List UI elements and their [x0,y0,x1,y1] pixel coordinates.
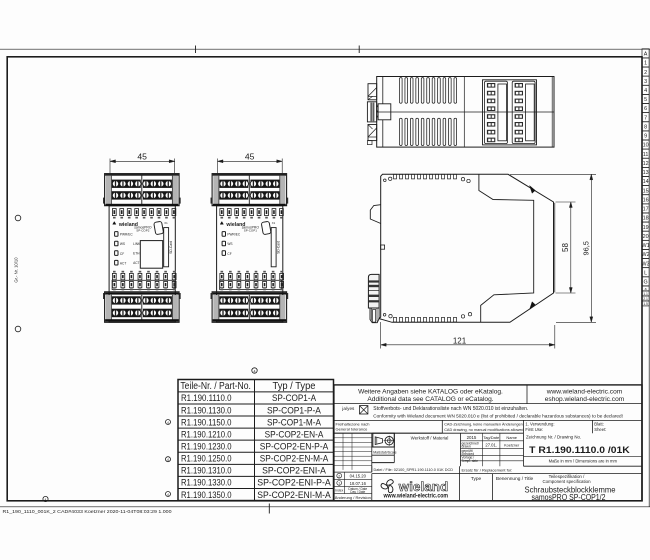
svg-text:SP-COP2-ENI-A: SP-COP2-ENI-A [262,465,326,476]
svg-text:121: 121 [453,336,467,345]
svg-text:14: 14 [643,179,649,185]
svg-text:1.1: 1.1 [643,292,648,296]
svg-text:www.wieland-electric.com: www.wieland-electric.com [546,388,623,395]
svg-text:PWR/EC: PWR/EC [227,233,240,237]
svg-text:CF: CF [227,252,231,256]
svg-text:WS: WS [227,242,232,246]
svg-text:96,5: 96,5 [581,241,590,255]
svg-text:R1.190.1150.0: R1.190.1150.0 [181,416,232,427]
svg-text:R1.190.1130.0: R1.190.1130.0 [181,404,232,415]
svg-text:T R1.190.1110.0 /01K: T R1.190.1110.0 /01K [529,445,630,455]
svg-text:Teile-Nr. / Part-No.: Teile-Nr. / Part-No. [180,381,251,392]
svg-text:Gr.- Nr. 10/10: Gr.- Nr. 10/10 [14,257,19,283]
svg-text:G: G [643,280,647,286]
svg-text:Sheet:: Sheet: [594,427,606,432]
svg-text:1.5: 1.5 [643,302,648,306]
svg-text:R1.190.1230.0: R1.190.1230.0 [181,440,232,451]
svg-text:Zeichnung Nr. / Drawing No.: Zeichnung Nr. / Drawing No. [526,435,581,440]
svg-text:4: 4 [644,88,647,94]
svg-text:ETH: ETH [133,252,140,256]
svg-text:20: 20 [643,234,649,240]
svg-text:16: 16 [643,197,649,203]
svg-text:L: L [644,270,647,276]
svg-text:X1: X1 [164,221,168,225]
svg-text:12: 12 [643,161,649,167]
svg-text:R1.190.1210.0: R1.190.1210.0 [181,428,232,439]
svg-text:www.wieland-electric.com: www.wieland-electric.com [383,494,448,500]
svg-text:7: 7 [644,115,647,121]
svg-text:CAD-Zeichnung, keine manuellen: CAD-Zeichnung, keine manuellen Änderunge… [444,422,523,426]
svg-text:PWR/EC: PWR/EC [120,233,133,237]
svg-text:5: 5 [644,97,647,103]
svg-text:45: 45 [137,151,147,161]
svg-text:SP-COP1: SP-COP1 [244,229,258,233]
svg-text:A: A [644,52,648,58]
svg-text:SD-Card: SD-Card [169,241,173,254]
svg-text:R1.190.1110.0: R1.190.1110.0 [181,392,232,403]
svg-text:2: 2 [644,70,647,76]
svg-text:samosPRO SP-COP1/2: samosPRO SP-COP1/2 [532,492,606,502]
svg-text:11: 11 [643,152,649,158]
svg-text:wieland: wieland [398,479,449,494]
svg-text:ja/yes: ja/yes [341,406,355,411]
svg-text:Day / Date: Day / Date [350,490,365,494]
svg-text:Name: Name [506,435,517,440]
svg-text:4: 4 [167,421,169,425]
svg-text:R1.190.1330.0: R1.190.1330.0 [181,477,232,488]
svg-text:Type: Type [471,476,482,482]
svg-text:W2: W2 [642,252,650,258]
svg-text:8: 8 [644,124,647,130]
svg-text:R1.190.1310.0: R1.190.1310.0 [181,465,232,476]
svg-text:R1.190.1250.0: R1.190.1250.0 [181,453,232,464]
svg-text:04.15.20: 04.15.20 [350,474,367,479]
svg-text:Werkstoff / Material: Werkstoff / Material [411,435,449,440]
svg-text:SP-COP1-A: SP-COP1-A [272,392,317,403]
svg-text:9: 9 [644,134,647,140]
svg-text:4: 4 [45,498,47,502]
svg-text:15: 15 [643,188,649,194]
svg-text:2015: 2015 [467,435,477,440]
svg-text:CF: CF [120,252,124,256]
svg-text:1: 1 [338,482,340,486]
svg-text:19: 19 [643,225,649,231]
svg-text:SP-COP1-M-A: SP-COP1-M-A [267,416,322,427]
svg-text:Datei / File: 02100_SPR1.190.1: Datei / File: 02100_SPR1.190.1110.0 01K … [374,468,454,472]
svg-text:Änderung / Revision: Änderung / Revision [335,495,371,500]
svg-text:10: 10 [643,143,649,149]
svg-text:Maßstab/Scale: Maßstab/Scale [373,450,396,454]
svg-text:Blatt:: Blatt: [594,421,604,426]
svg-text:Component specification: Component specification [542,479,591,484]
svg-text:2.1: 2.1 [643,297,648,301]
svg-text:R1_190_1110_001K_2 CAD#4033 K: R1_190_1110_001K_2 CAD#4033 Koetzner 202… [3,509,172,514]
svg-text:Index: Index [335,488,343,492]
svg-text:13: 13 [643,170,649,176]
svg-text:Ersatz für / Replacement for: Ersatz für / Replacement for: [462,467,513,472]
svg-text:Additional data see CATALOG or: Additional data see CATALOG or eCatalog. [367,396,493,403]
svg-text:Benennung / Title: Benennung / Title [496,476,534,482]
svg-text:4: 4 [254,369,256,373]
svg-text:Tag/Date: Tag/Date [483,435,500,440]
svg-text:18: 18 [643,216,649,222]
svg-text:Weitere Angaben siehe KATALOG: Weitere Angaben siehe KATALOG oder eKata… [358,388,503,395]
svg-text:1: 1 [644,61,647,67]
svg-text:27.01.: 27.01. [485,442,497,447]
svg-text:6: 6 [644,106,647,112]
svg-text:General tolerance: General tolerance [336,427,369,432]
svg-text:45: 45 [245,151,255,161]
svg-text:SP-COP2-EN-A: SP-COP2-EN-A [265,428,324,439]
svg-text:4: 4 [167,458,169,462]
svg-text:Templ. date: Templ. date [462,459,479,463]
svg-text:SP-COP2-EN-P-A: SP-COP2-EN-P-A [260,440,329,451]
svg-text:SP-COP2: SP-COP2 [136,229,150,233]
svg-text:Typ / Type: Typ / Type [273,381,316,392]
svg-text:18.07.16: 18.07.16 [350,481,367,486]
svg-text:CAD drawing, no manual modific: CAD drawing, no manual modifications all… [444,428,523,432]
svg-text:2: 2 [338,474,340,478]
svg-text:SP-COP2-EN-M-A: SP-COP2-EN-M-A [260,453,329,464]
svg-text:R1.190.1350.0: R1.190.1350.0 [181,489,232,500]
svg-text:Stoffverbots- und Deklarations: Stoffverbots- und Deklarationsliste nach… [373,406,528,412]
svg-text:SP-COP1-P-A: SP-COP1-P-A [267,404,322,415]
svg-text:58: 58 [561,243,570,252]
svg-text:WS: WS [120,242,125,246]
svg-text:First Use:: First Use: [525,427,543,432]
svg-text:ACT: ACT [133,261,139,265]
svg-text:3: 3 [644,79,647,85]
svg-text:W3: W3 [642,261,650,267]
svg-text:Koetzner: Koetzner [504,443,520,447]
svg-text:SP-COP2-ENI-M-A: SP-COP2-ENI-M-A [257,489,331,500]
svg-text:a: a [645,287,647,291]
svg-text:SD-Card: SD-Card [276,241,280,254]
svg-text:Conformity with Wieland docume: Conformity with Wieland document WN 5020… [373,414,623,419]
svg-text:W1: W1 [642,243,650,249]
svg-text:4: 4 [167,493,169,497]
svg-text:X1: X1 [272,221,276,225]
svg-text:Maße in mm / Dimensions are in: Maße in mm / Dimensions are in mm [549,458,618,463]
svg-text:ACT: ACT [120,261,126,265]
svg-text:eshop.wieland-electric.com: eshop.wieland-electric.com [545,396,625,403]
svg-text:SP-COP2-ENI-P-A: SP-COP2-ENI-P-A [257,477,331,488]
svg-text:1. Verwendung:: 1. Verwendung: [525,421,554,426]
svg-text:17: 17 [643,207,649,213]
